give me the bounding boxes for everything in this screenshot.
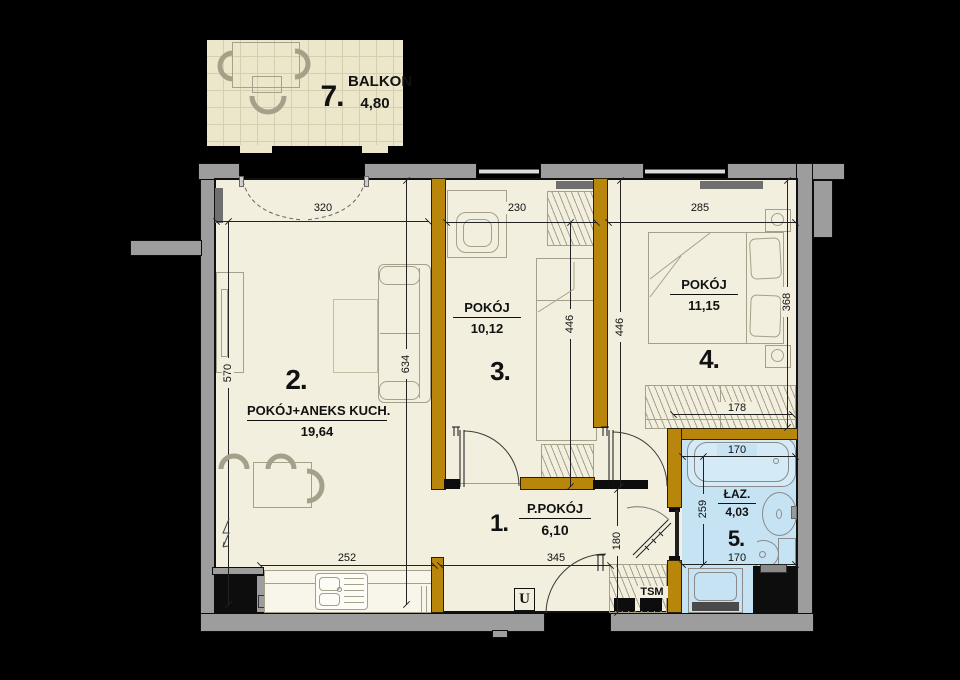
tv-cabinet-inner: [221, 289, 228, 357]
nightstand-top-lamp: [771, 213, 784, 226]
bathroom-shaft: [753, 566, 796, 613]
room3-door-threshold: [460, 483, 520, 484]
room-number-hall: 1.: [479, 510, 519, 538]
appliance-line: [426, 586, 427, 613]
nightstand-bottom-lamp: [771, 349, 784, 362]
sink-bowl-2: [319, 593, 340, 606]
balcony-table-shelf: [252, 76, 282, 93]
dining-table: [253, 462, 312, 508]
balcony-door-post-left: [239, 176, 244, 187]
window-room4: [645, 169, 725, 174]
appliance-line: [421, 586, 422, 613]
dim-label-285: 285: [680, 202, 720, 214]
pillow-1: [749, 237, 782, 280]
dim-label-345: 345: [536, 552, 576, 564]
sink-faucet: [337, 587, 342, 592]
room-area-room3: 10,12: [453, 321, 521, 336]
dim-line-178: [673, 414, 793, 415]
dim-line-570: [228, 221, 229, 605]
toilet-drain: [759, 551, 766, 558]
dim-line-252: [260, 565, 435, 566]
room-name-balcony: BALKON: [348, 73, 408, 90]
double-bed-divider: [746, 233, 747, 343]
bathroom-shaft-cap: [760, 564, 787, 573]
room-area-room4: 11,15: [670, 298, 738, 313]
room-name-room3: POKÓJ: [453, 300, 521, 318]
pillow-2: [749, 294, 781, 337]
wall-bath-left-upper: [667, 428, 682, 508]
wall-room3-room4: [593, 178, 608, 428]
room-area-hall: 6,10: [519, 522, 591, 538]
sink-drainer-line: [344, 602, 364, 603]
dim-label-259: 259: [697, 494, 709, 524]
sink-drainer-line: [344, 590, 364, 591]
wall-bath-top: [667, 428, 798, 440]
balcony-door-post-right: [364, 176, 369, 187]
desk-chair-seat: [463, 219, 492, 247]
dim-label-178: 178: [717, 402, 757, 414]
washbasin-tap: [791, 506, 797, 519]
room-number-room3: 3.: [478, 356, 522, 387]
washing-machine-panel: [692, 602, 739, 611]
washing-machine-drum: [694, 572, 737, 601]
room-area-living: 19,64: [247, 424, 387, 439]
room-name-hall: P.POKÓJ: [519, 501, 591, 519]
radiator-room4: [700, 181, 763, 189]
wall-right-thick: [813, 180, 833, 238]
dim-label-170-bottom: 170: [717, 552, 757, 564]
tsm-closet-shelf: [610, 577, 666, 578]
wall-room3-hall: [520, 477, 595, 490]
dim-label-320: 320: [303, 202, 343, 214]
dim-label-446b: 446: [614, 312, 626, 342]
wall-bottom-notch: [492, 630, 508, 638]
washbasin-drain: [776, 509, 782, 519]
dim-line-446a: [570, 222, 571, 487]
dim-line-230: [446, 222, 597, 223]
bed-room3-line: [537, 300, 596, 301]
room-name-living: POKÓJ+ANEKS KUCH.: [247, 403, 387, 421]
dim-label-368: 368: [781, 287, 793, 317]
dim-line-170-top: [682, 456, 796, 457]
dim-line-634: [406, 180, 407, 605]
dim-label-230: 230: [497, 202, 537, 214]
balcony-tab-left: [240, 145, 272, 153]
dim-label-570: 570: [222, 358, 234, 388]
entrance-marker-box: U: [514, 588, 535, 611]
dim-label-446a: 446: [564, 309, 576, 339]
wall-living-room3: [431, 178, 446, 490]
room-number-living: 2.: [272, 364, 320, 396]
dim-line-285: [608, 222, 796, 223]
dim-line-320: [216, 221, 429, 222]
entrance-marker-label: U: [519, 591, 530, 607]
wall-right: [796, 163, 813, 632]
dim-line-345: [440, 565, 611, 566]
dim-line-170-bottom: [682, 564, 796, 565]
tsm-shoe-box-2: [640, 598, 662, 611]
dim-label-170-top: 170: [717, 444, 757, 456]
room-area-bath: 4,03: [718, 505, 756, 519]
sink-drainer-line: [344, 596, 364, 597]
sink-drainer-line: [344, 578, 364, 579]
room-number-bath: 5.: [715, 526, 757, 552]
wall-bath-left-lower: [667, 560, 682, 613]
bathtub-drain: [773, 458, 779, 464]
sofa-armrest-top: [379, 266, 420, 285]
sofa-armrest-bottom: [379, 381, 420, 400]
wall-jamb-room3-door: [444, 479, 460, 489]
wall-left-stub: [130, 240, 202, 256]
wall-bottom-2: [610, 613, 814, 632]
rug: [333, 299, 378, 373]
bed-room3: [536, 258, 597, 441]
room-name-bath: ŁAZ.: [718, 487, 756, 504]
shaft-wall-top: [212, 567, 264, 575]
dim-label-252: 252: [327, 552, 367, 564]
balcony-tab-right: [362, 145, 388, 153]
radiator-living: [215, 188, 223, 223]
room-area-balcony: 4,80: [350, 95, 400, 112]
tsm-label: TSM: [636, 586, 668, 598]
shaft-left: [214, 575, 256, 613]
bath-door-line: [675, 510, 679, 558]
window-room3: [479, 169, 539, 174]
floor-plan: 320 230 285 570 634 446 446 368 178 170 …: [0, 0, 960, 680]
wardrobe-room4-rail: [646, 419, 795, 420]
sofa-seat-divider: [380, 333, 420, 334]
dim-label-180: 180: [611, 526, 623, 556]
dim-label-634: 634: [400, 349, 412, 379]
room-number-room4: 4.: [687, 344, 731, 375]
radiator-room3: [556, 181, 597, 189]
sink-drainer-line: [344, 584, 364, 585]
room-name-room4: POKÓJ: [670, 277, 738, 295]
